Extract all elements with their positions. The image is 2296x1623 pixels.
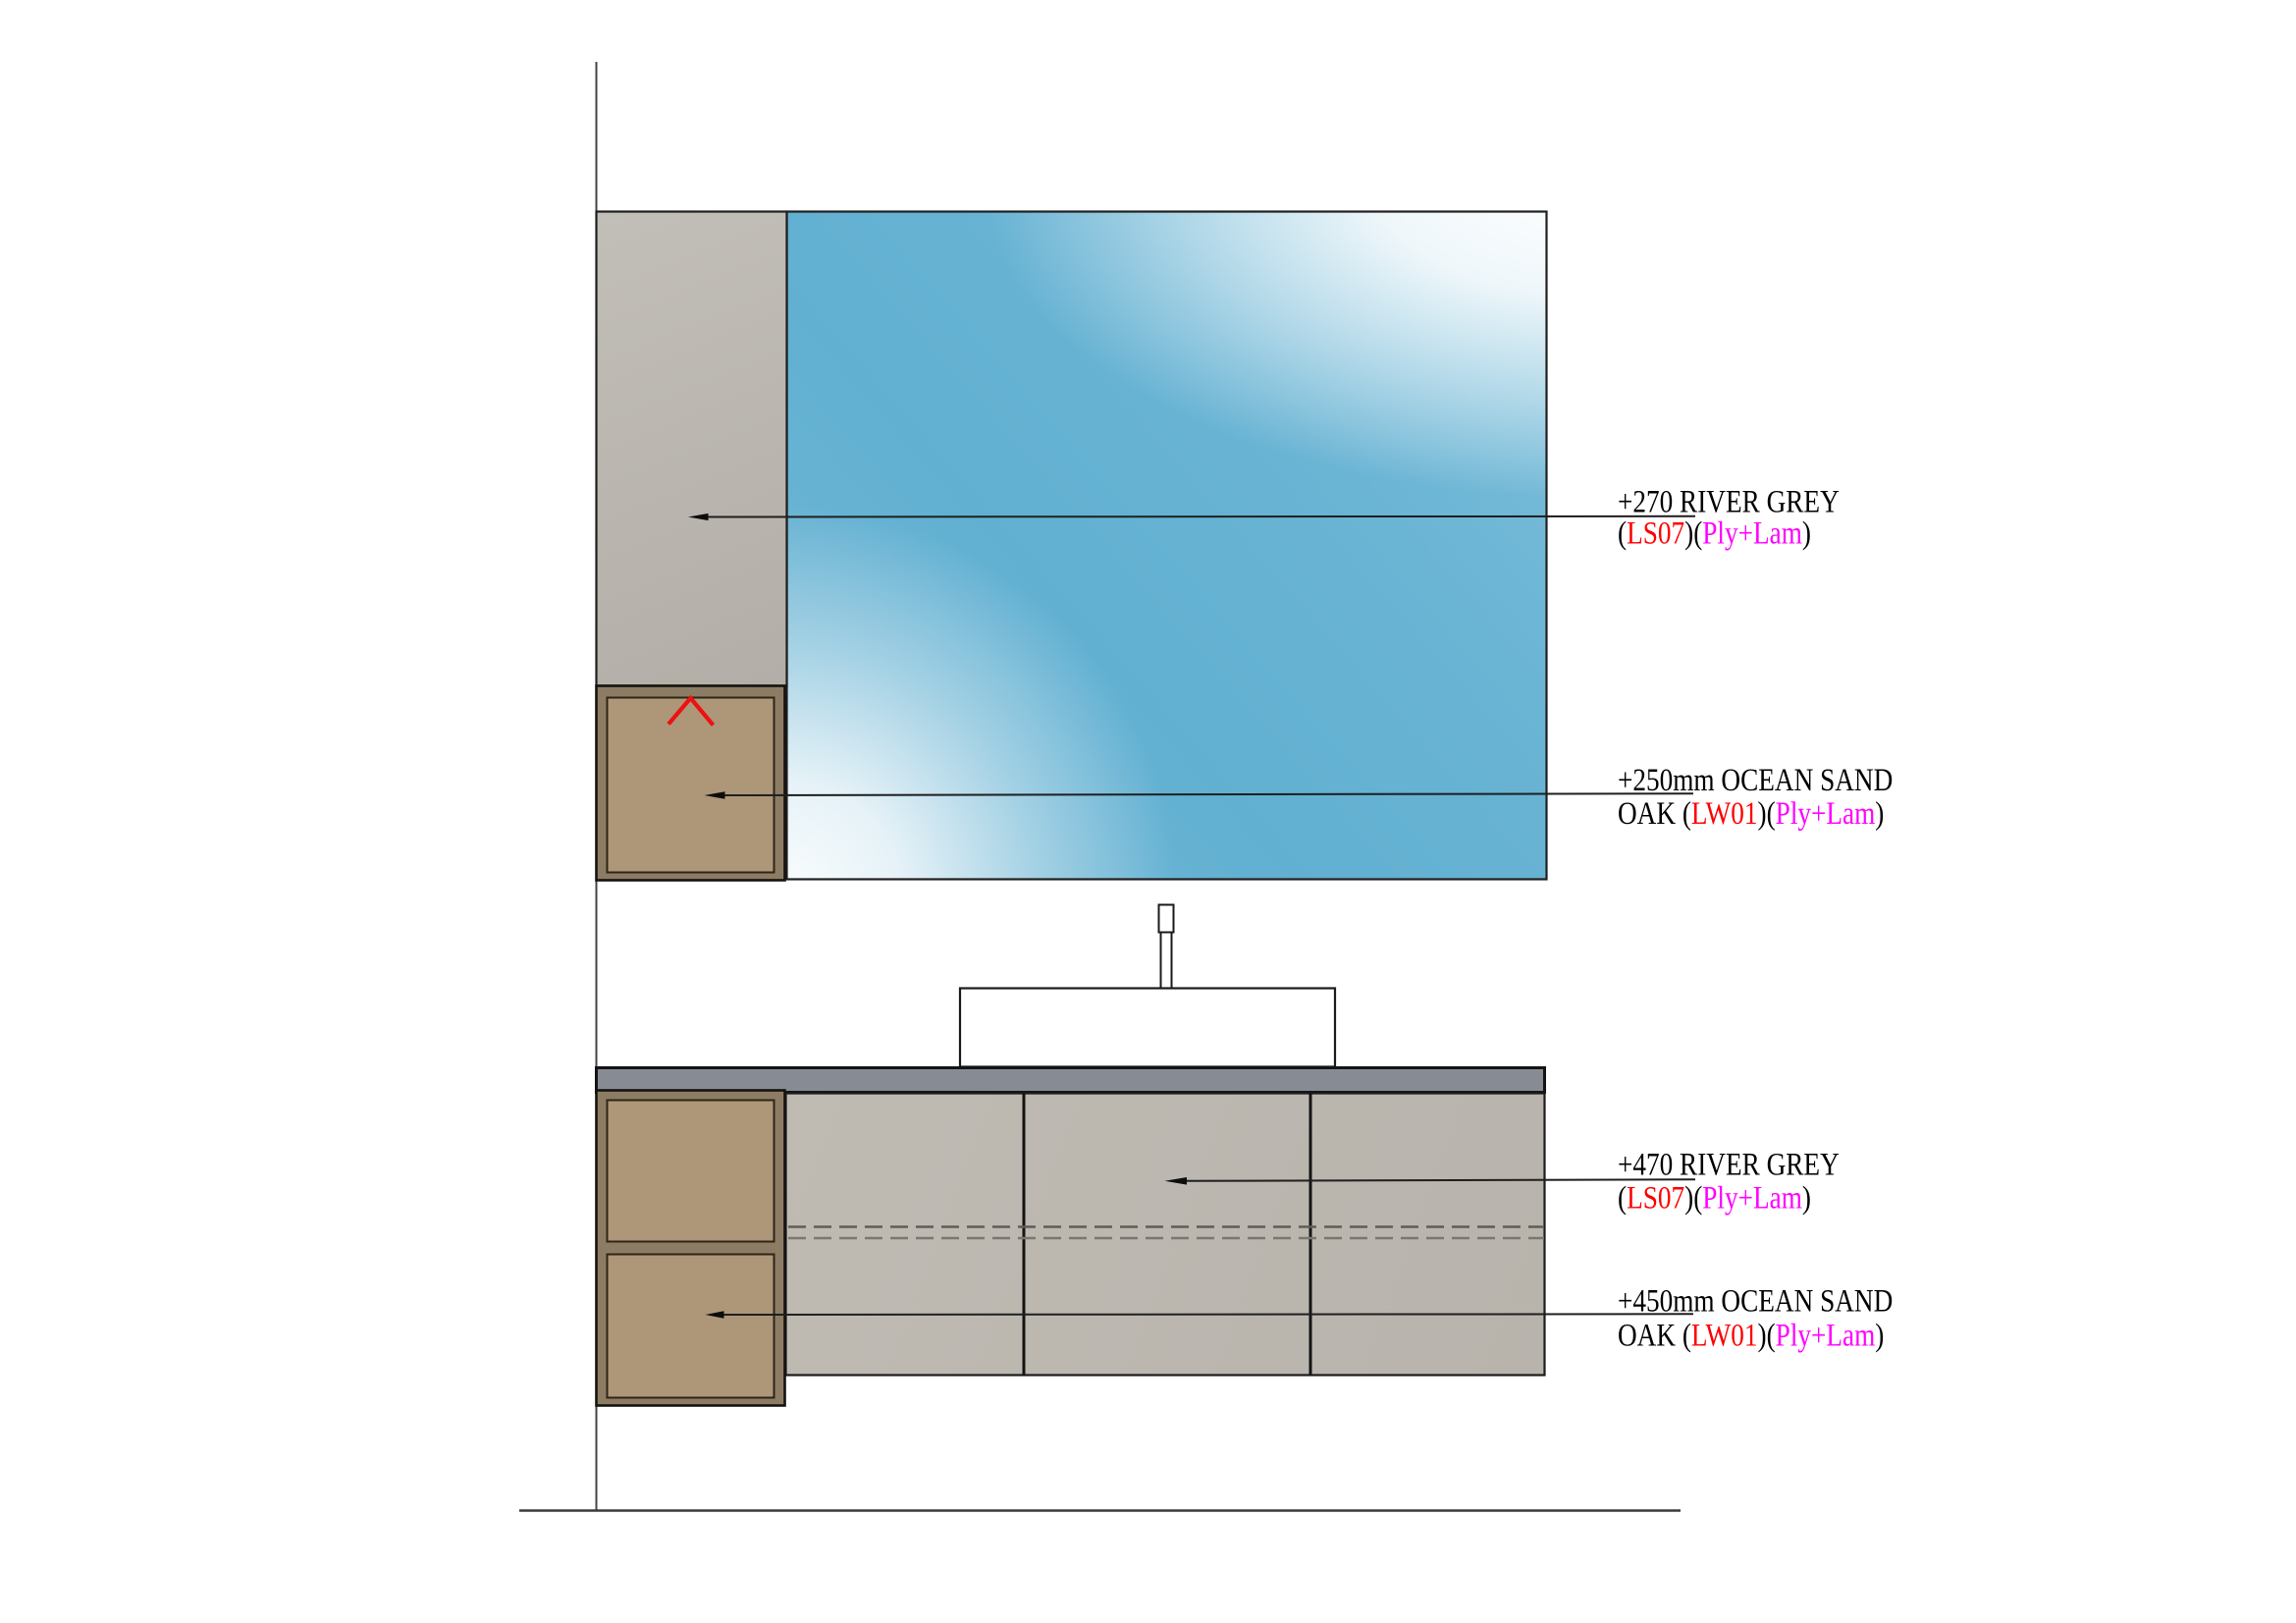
svg-text:(LS07)(Ply+Lam): (LS07)(Ply+Lam): [1618, 514, 1811, 551]
svg-text:OAK (LW01)(Ply+Lam): OAK (LW01)(Ply+Lam): [1618, 795, 1884, 832]
svg-text:OAK (LW01)(Ply+Lam): OAK (LW01)(Ply+Lam): [1618, 1317, 1884, 1353]
svg-text:+450mm OCEAN SAND: +450mm OCEAN SAND: [1618, 1282, 1893, 1319]
svg-text:+470 RIVER GREY: +470 RIVER GREY: [1618, 1146, 1840, 1182]
svg-text:(LS07)(Ply+Lam): (LS07)(Ply+Lam): [1618, 1179, 1811, 1216]
svg-text:+250mm OCEAN SAND: +250mm OCEAN SAND: [1618, 762, 1893, 798]
